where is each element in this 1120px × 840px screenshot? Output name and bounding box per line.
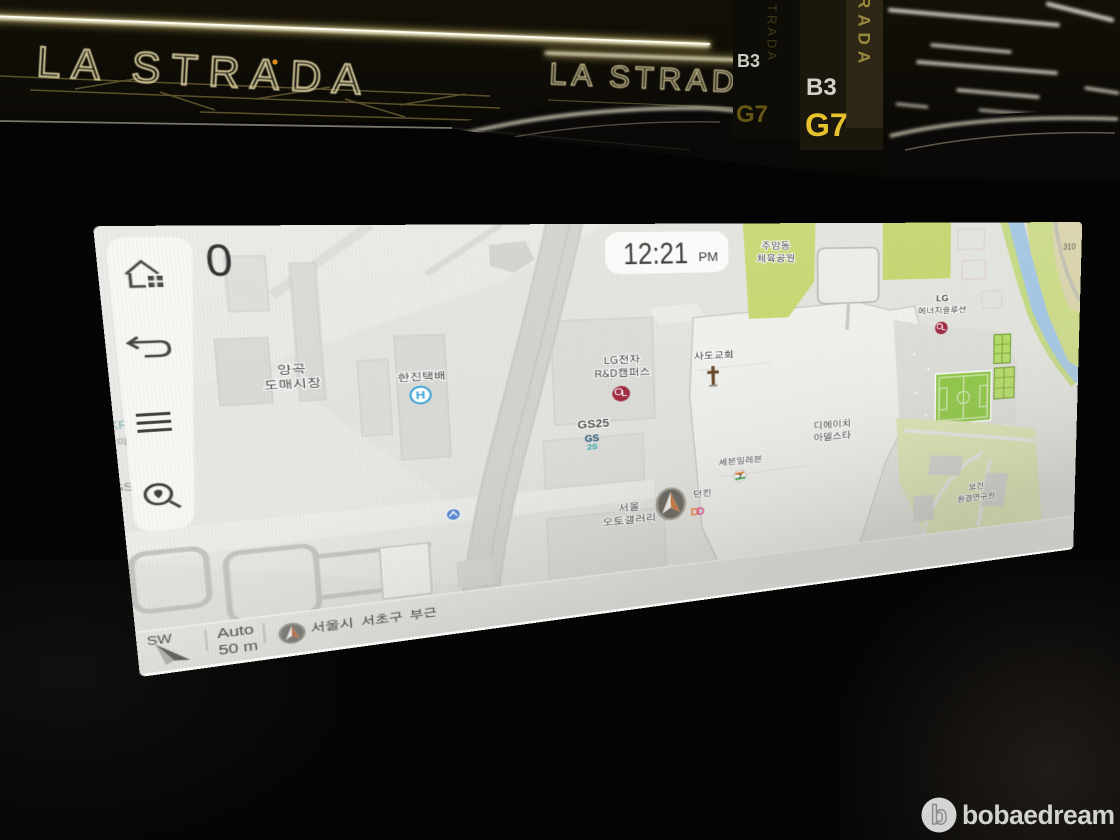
svg-text:RADA: RADA [855, 0, 874, 69]
svg-text:bobaedream: bobaedream [962, 800, 1115, 830]
svg-text:G7: G7 [736, 101, 768, 128]
svg-text:B3: B3 [737, 51, 760, 71]
svg-text:TRADA: TRADA [765, 4, 780, 63]
svg-text:b: b [931, 800, 948, 830]
svg-text:G7: G7 [805, 107, 848, 143]
svg-text:B3: B3 [806, 74, 837, 101]
